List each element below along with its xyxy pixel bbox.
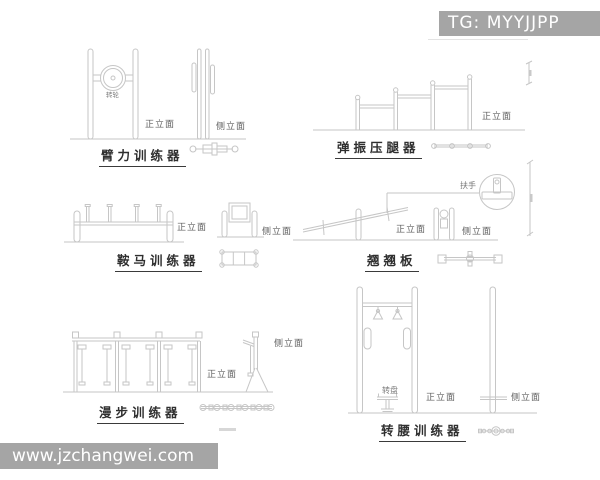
walker-side-label: 侧立面 (274, 336, 304, 349)
leg-press-title: 弹振压腿器 (335, 137, 422, 159)
waist-twister-side-label: 侧立面 (511, 390, 541, 403)
walker-plan-view (197, 401, 275, 414)
arm-trainer-part-label: 转轮 (106, 89, 119, 99)
leg-press-plan-view (430, 140, 492, 152)
leg-press-front-label: 正立面 (482, 109, 512, 122)
seesaw-side-view (434, 208, 454, 240)
leg-press-dimension-mark (524, 60, 536, 86)
walker-drawing (58, 328, 303, 398)
seesaw-front-label: 正立面 (396, 222, 426, 235)
drawing-sheet: TG: MYYJJPP 转轮 正立面 侧立面 臂力训练器 (0, 0, 600, 480)
seesaw-plan-view (436, 250, 504, 268)
watermark-bottom: www.jzchangwei.com (0, 443, 218, 469)
waist-twister-plan-view (477, 424, 515, 438)
seesaw-side-label: 侧立面 (462, 224, 492, 237)
waist-twister-side-view (480, 287, 507, 413)
arm-trainer-side-view (192, 49, 215, 139)
pommel-horse-title: 鞍马训练器 (115, 250, 202, 272)
seesaw-dimension-line (524, 160, 536, 238)
waist-twister-pedestal (377, 394, 398, 412)
seesaw-part-label: 扶手 (460, 180, 476, 191)
seesaw-handle-detail (480, 175, 515, 210)
seesaw-title: 翘翘板 (365, 250, 419, 272)
waist-twister-front-label: 正立面 (426, 390, 456, 403)
leg-press-drawing (310, 55, 535, 135)
waist-twister-part-label: 转盘 (382, 385, 398, 396)
walker-pendulums (78, 345, 196, 385)
arm-trainer-front-label: 正立面 (145, 117, 175, 130)
walker-front-label: 正立面 (207, 367, 237, 380)
divider-line (428, 39, 528, 40)
arm-trainer-plan-view (188, 141, 240, 157)
arm-trainer-side-label: 侧立面 (216, 119, 246, 132)
tiny-annotation (219, 428, 236, 431)
pommel-horse-side-view (217, 203, 264, 237)
waist-twister-title: 转腰训练器 (379, 420, 466, 442)
watermark-top: TG: MYYJJPP (439, 11, 600, 36)
arm-trainer-title: 臂力训练器 (99, 145, 186, 167)
walker-front-view (63, 332, 243, 392)
walker-side-view (241, 332, 273, 392)
pommel-horse-front-label: 正立面 (177, 220, 207, 233)
pommel-horse-side-label: 侧立面 (262, 224, 292, 237)
pommel-horse-front-view (64, 205, 184, 243)
walker-title: 漫步训练器 (97, 402, 184, 424)
pommel-horse-plan-view (219, 249, 259, 269)
